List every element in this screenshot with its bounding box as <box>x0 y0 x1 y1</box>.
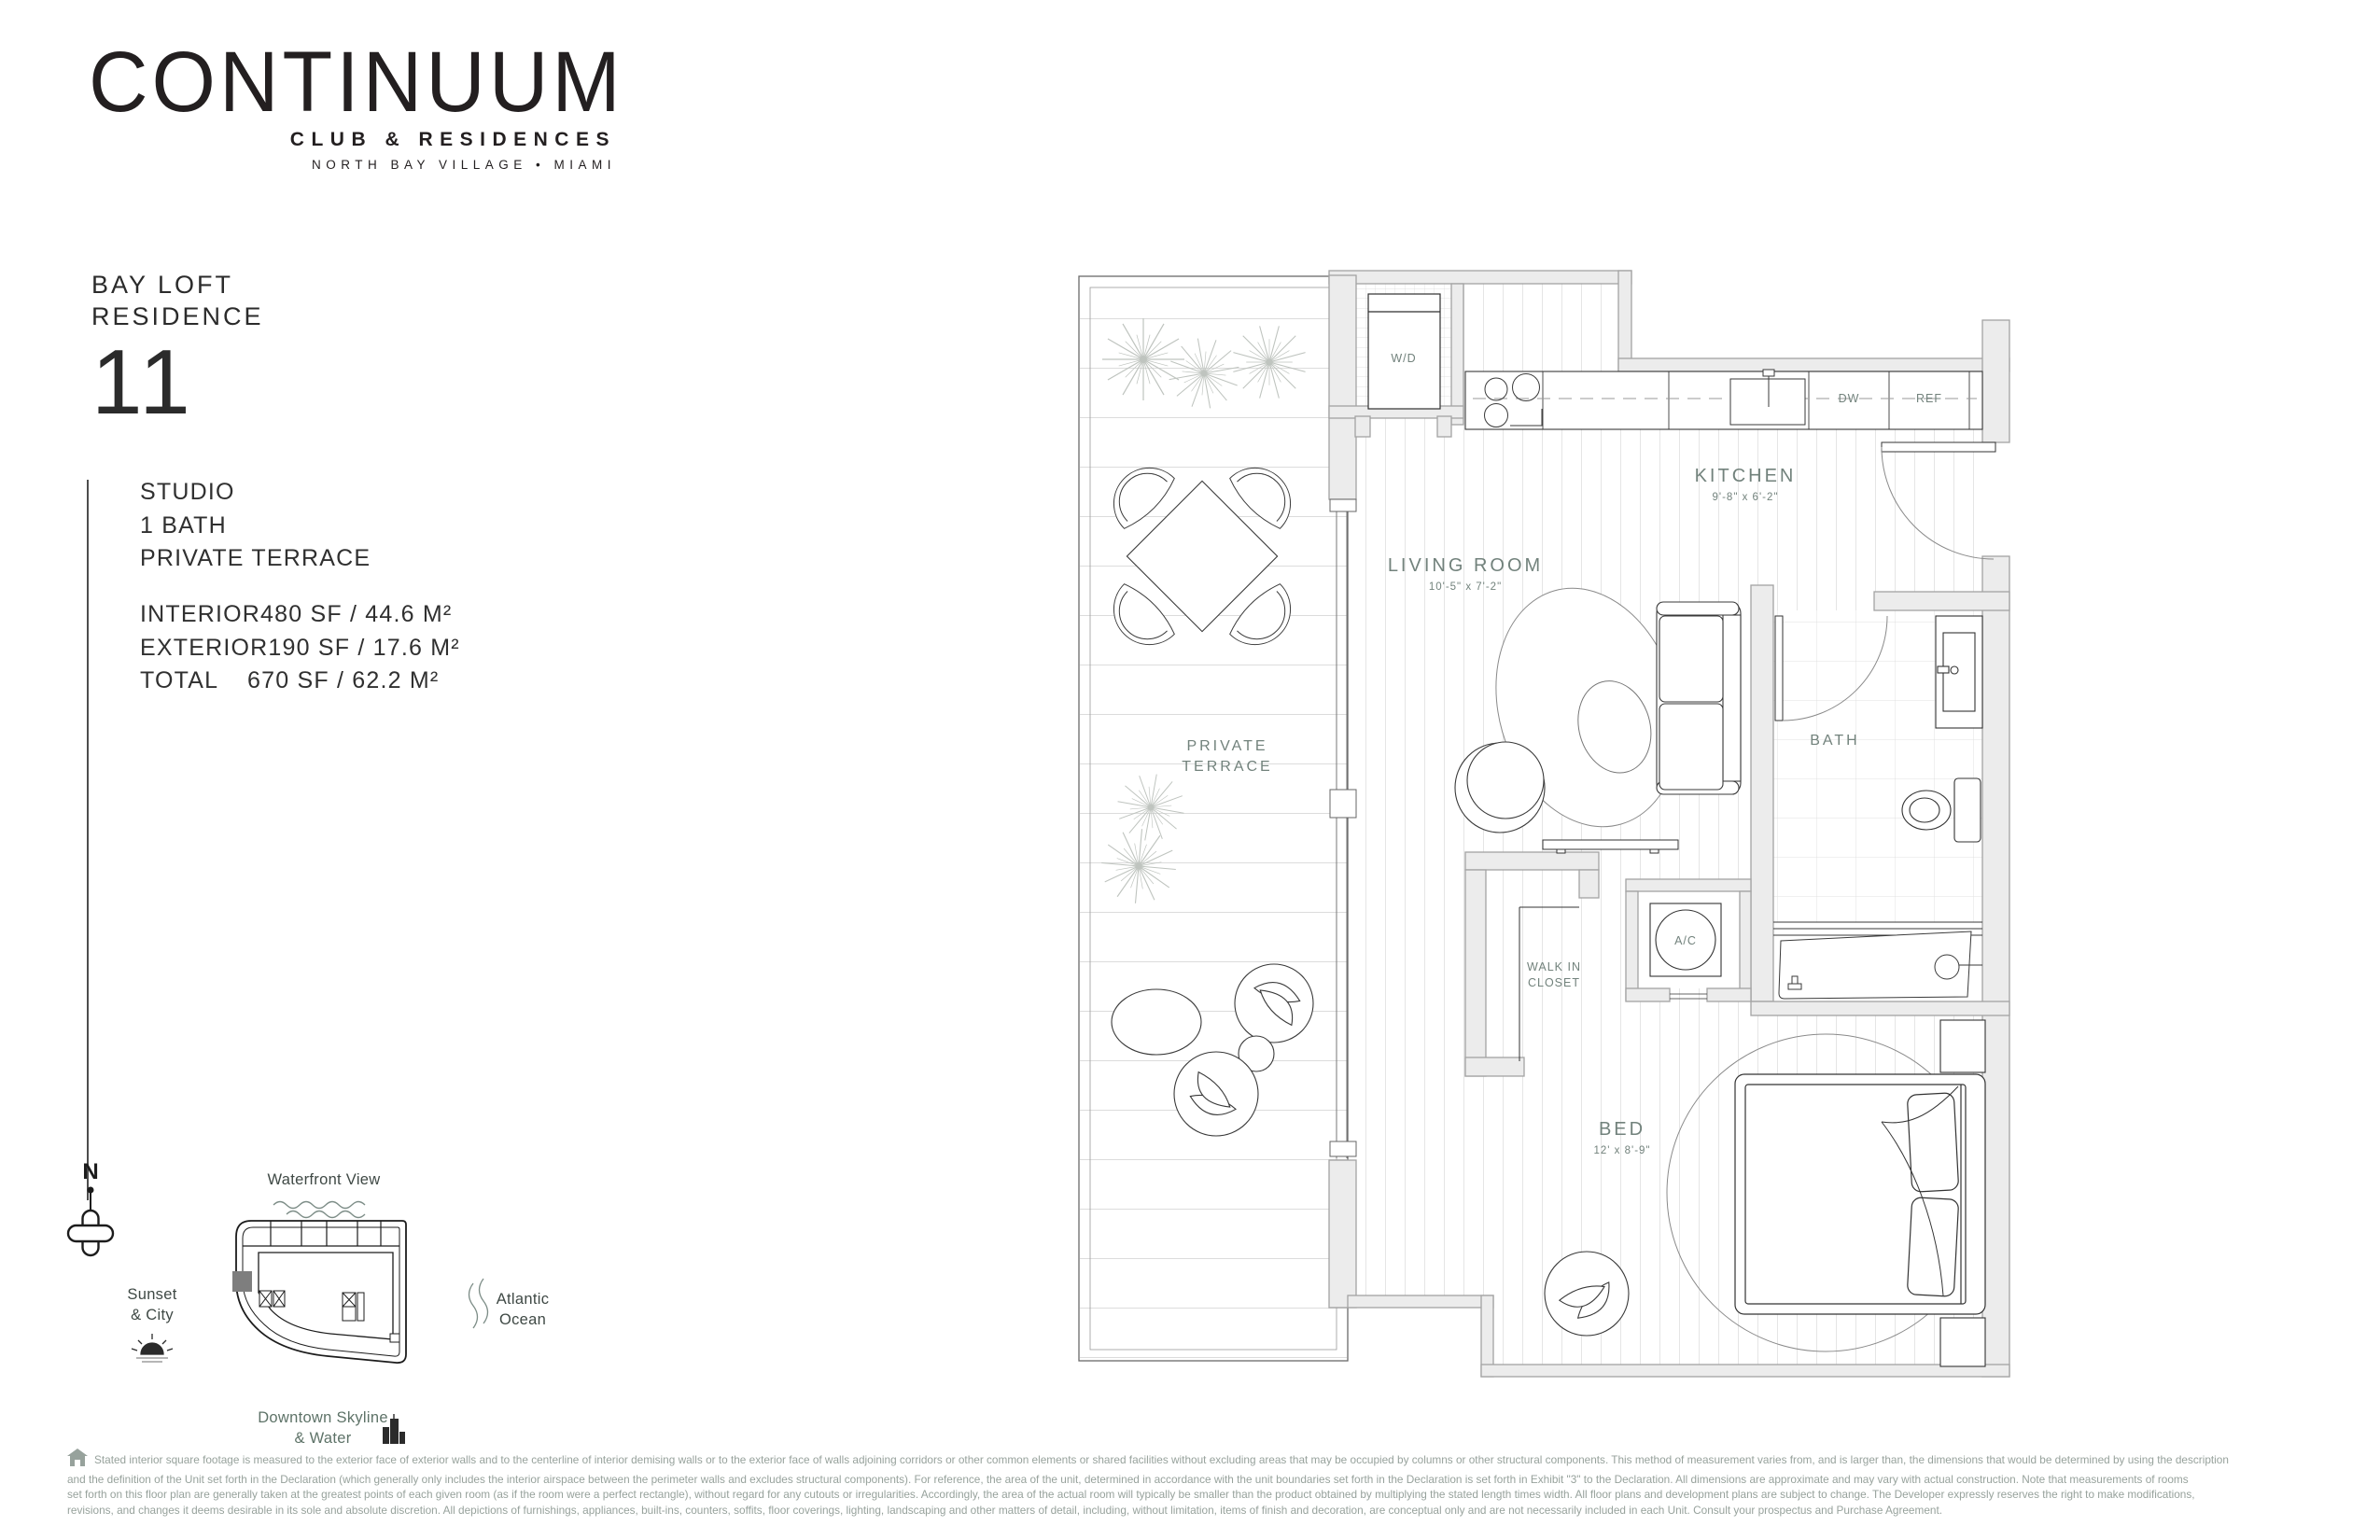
walkin-closet-label: CLOSET <box>1528 976 1580 989</box>
atlantic-ocean-label: Atlantic <box>497 1291 550 1308</box>
area-value: 190 SF / 17.6 M² <box>268 635 459 661</box>
area-label: EXTERIOR <box>140 632 268 665</box>
terrace-table-icon <box>1112 989 1201 1055</box>
brand-tagline: CLUB & RESIDENCES <box>89 129 616 151</box>
terrace-chair-icon <box>1235 964 1313 1043</box>
downtown-skyline-label: Downtown Skyline <box>258 1409 388 1426</box>
bath-label: BATH <box>1810 733 1859 749</box>
bed-icon <box>1735 1074 1985 1314</box>
legal-disclaimer: Stated interior square footage is measur… <box>67 1449 2354 1518</box>
terrace-label: PRIVATE <box>1186 738 1267 754</box>
area-label: TOTAL <box>140 665 247 698</box>
area-list: INTERIOR480 SF / 44.6 M² EXTERIOR190 SF … <box>140 598 460 698</box>
residence-title: BAY LOFT RESIDENCE <box>91 269 264 332</box>
sunset-city-label: Sunset <box>127 1286 176 1303</box>
feature-list: STUDIO 1 BATH PRIVATE TERRACE <box>140 476 371 576</box>
area-row: TOTAL670 SF / 62.2 M² <box>140 665 460 698</box>
area-row: INTERIOR480 SF / 44.6 M² <box>140 598 460 632</box>
waves-icon <box>273 1202 365 1218</box>
keyplan-diagram: N Waterfront View Sunset & City <box>51 1153 611 1461</box>
bed-label: BED <box>1599 1119 1645 1140</box>
terrace-chair-icon <box>1174 1052 1258 1136</box>
disclaimer-line: set forth on this floor plan are general… <box>67 1487 2354 1503</box>
house-icon <box>67 1449 88 1472</box>
divider-line <box>87 480 89 1200</box>
brand-location: NORTH BAY VILLAGE • MIAMI <box>89 158 616 172</box>
living-room-dims: 10'-5" x 7'-2" <box>1429 581 1502 593</box>
feature-item: STUDIO <box>140 476 371 510</box>
wd-label: W/D <box>1391 352 1416 365</box>
sofa-icon <box>1657 602 1741 794</box>
brand-logo: CONTINUUM CLUB & RESIDENCES NORTH BAY VI… <box>89 39 616 172</box>
area-value: 480 SF / 44.6 M² <box>260 601 452 627</box>
waterfront-view-label: Waterfront View <box>268 1171 381 1188</box>
dw-label: DW <box>1839 392 1860 405</box>
walkin-closet-label: WALK IN <box>1527 960 1581 973</box>
terrace-label: TERRACE <box>1182 759 1272 775</box>
kitchen-label: KITCHEN <box>1695 466 1797 486</box>
nightstand <box>1940 1318 1985 1366</box>
area-label: INTERIOR <box>140 598 260 632</box>
north-compass-icon: N <box>68 1159 113 1255</box>
brand-name: CONTINUUM <box>89 39 616 125</box>
kitchen-counter <box>1465 370 1982 429</box>
disclaimer-line: revisions, and changes it deems desirabl… <box>67 1503 2354 1519</box>
ac-label: A/C <box>1674 934 1697 947</box>
residence-number: 11 <box>91 336 194 427</box>
sun-icon <box>132 1334 173 1362</box>
building-keyplan <box>232 1221 406 1363</box>
ref-label: REF <box>1916 392 1942 405</box>
atlantic-ocean-label: Ocean <box>499 1311 546 1328</box>
floorplan-drawing: W/D DW REF KITCHEN 9'-8" x 6'-2" LIVING … <box>1071 269 2053 1379</box>
disclaimer-line: and the definition of the Unit set forth… <box>67 1472 2354 1488</box>
ocean-waves-icon <box>469 1279 488 1328</box>
vanity-sink-icon <box>1936 616 1982 728</box>
disclaimer-line: Stated interior square footage is measur… <box>94 1453 2229 1466</box>
feature-item: PRIVATE TERRACE <box>140 542 371 576</box>
nightstand <box>1940 1020 1985 1072</box>
unit-location-marker <box>232 1271 252 1292</box>
downtown-skyline-label: & Water <box>294 1430 351 1447</box>
kitchen-dims: 9'-8" x 6'-2" <box>1713 492 1779 503</box>
area-value: 670 SF / 62.2 M² <box>247 667 439 693</box>
lounge-chair-icon <box>1455 742 1545 833</box>
residence-title-line2: RESIDENCE <box>91 301 264 332</box>
floorplan-brochure-page: { "brand": { "name": "CONTINUUM", "tagli… <box>0 0 2380 1540</box>
svg-text:N: N <box>82 1159 98 1184</box>
sunset-city-label: & City <box>131 1307 174 1323</box>
bedroom-chair-icon <box>1545 1252 1629 1336</box>
residence-title-line1: BAY LOFT <box>91 269 264 301</box>
area-row: EXTERIOR190 SF / 17.6 M² <box>140 632 460 665</box>
living-room-label: LIVING ROOM <box>1388 555 1543 576</box>
bed-dims: 12' x 8'-9" <box>1593 1145 1650 1156</box>
feature-item: 1 BATH <box>140 510 371 543</box>
